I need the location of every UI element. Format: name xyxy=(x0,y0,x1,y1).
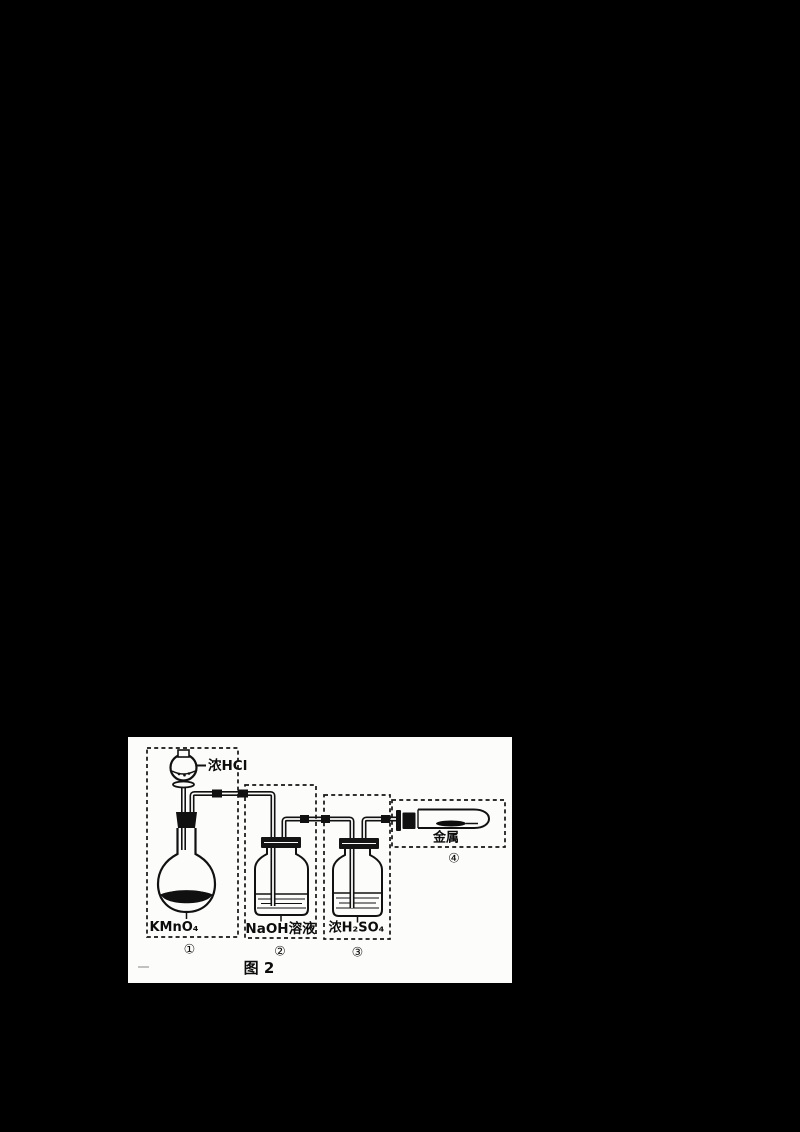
apparatus-diagram: 浓HCl xyxy=(128,737,512,983)
unit2-number: ② xyxy=(274,945,286,960)
unit2-label: NaOH溶液 xyxy=(245,920,316,937)
rubber-connector xyxy=(212,790,222,798)
unit3-label: 浓H₂SO₄ xyxy=(329,920,385,936)
metal-sample xyxy=(436,821,466,827)
unit3-number: ③ xyxy=(352,946,364,961)
unit1-number: ① xyxy=(184,943,196,958)
unit1-label: KMnO₄ xyxy=(149,920,198,935)
gas-bottle-h2so4 xyxy=(333,849,382,923)
delivery-tube-bottle3-to-tube xyxy=(364,815,396,838)
dropping-funnel xyxy=(171,750,197,788)
test-tube-stopper xyxy=(396,810,416,831)
unit4-number: ④ xyxy=(448,852,460,867)
hcl-callout: 浓HCl xyxy=(197,757,247,774)
funnel-reagent-label: 浓HCl xyxy=(208,757,247,774)
bottle3-cap xyxy=(339,838,379,849)
stopcock-flange xyxy=(173,782,194,788)
bottle2-cap xyxy=(261,837,301,848)
gas-bottle-naoh xyxy=(255,848,308,922)
page-background: { "figure": { "caption": "图 2", "funnel_… xyxy=(0,0,800,1132)
test-tube xyxy=(418,810,489,829)
round-bottom-flask xyxy=(158,828,215,919)
unit4-label: 金属 xyxy=(432,830,459,846)
figure-caption: 图 2 xyxy=(244,959,275,977)
rubber-connector xyxy=(381,815,390,823)
delivery-tube-flask-to-bottle2 xyxy=(192,790,273,907)
flask-stopper xyxy=(176,812,197,828)
scanned-figure-panel: 浓HCl xyxy=(128,737,512,983)
rubber-connector xyxy=(321,815,330,823)
rubber-connector xyxy=(300,815,309,823)
rubber-connector xyxy=(238,790,248,798)
